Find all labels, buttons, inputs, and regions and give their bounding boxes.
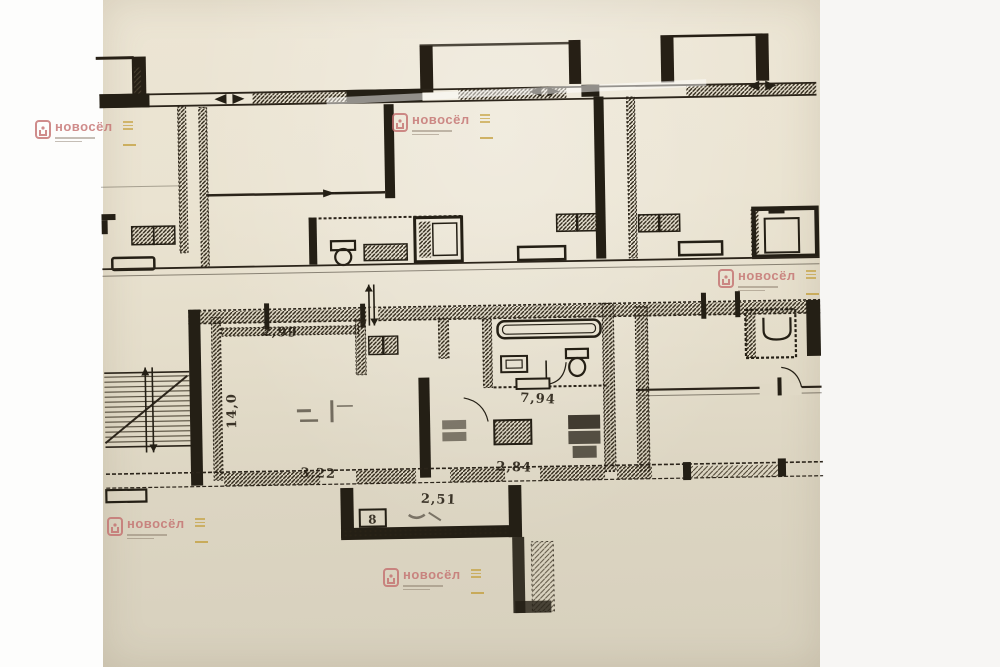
radiator-box bbox=[639, 214, 680, 232]
door-swing bbox=[464, 398, 488, 422]
novosel-logo-icon bbox=[383, 568, 399, 595]
stair-wall bbox=[188, 310, 203, 486]
watermark-accent-mark bbox=[123, 121, 136, 146]
toilet bbox=[331, 241, 355, 265]
dimension-room-bottom-width: 3,22 bbox=[300, 466, 336, 482]
interior-wall bbox=[199, 107, 210, 267]
interior-wall bbox=[178, 107, 189, 253]
interior-wall-with-door bbox=[206, 188, 385, 199]
watermark-accent-mark bbox=[806, 270, 819, 295]
watermark-accent-mark bbox=[195, 518, 208, 543]
dimension-porch-width: 2,51 bbox=[421, 492, 457, 508]
watermark-subtext-lines bbox=[127, 534, 185, 541]
radiator-box bbox=[132, 226, 175, 245]
pencil-marks bbox=[297, 400, 353, 423]
window-sill bbox=[679, 241, 722, 255]
bottom-exterior-wall bbox=[106, 458, 823, 491]
porch-room-number: 8 bbox=[368, 512, 378, 526]
watermark-novosel: новосёл bbox=[383, 568, 484, 595]
novosel-logo-icon bbox=[392, 113, 408, 140]
living-room bbox=[221, 319, 431, 482]
balcony-outline-3 bbox=[660, 35, 769, 83]
window-sill bbox=[518, 246, 565, 260]
floorplan-scan-photo: 2,99 14,0 3,22 7,94 2,84 2,51 8 новосёл … bbox=[0, 0, 1000, 667]
bathroom-block bbox=[438, 315, 608, 390]
interior-wall bbox=[211, 317, 223, 480]
watermark-novosel: новосёл bbox=[392, 113, 493, 140]
toilet bbox=[566, 349, 588, 376]
balcony-outline-2 bbox=[420, 40, 582, 93]
watermark-brand-text: новосёл bbox=[412, 113, 470, 127]
watermark-subtext-lines bbox=[403, 585, 461, 592]
watermark-subtext-lines bbox=[412, 130, 470, 137]
porch-extension bbox=[512, 536, 554, 613]
apartment-divider-wall bbox=[593, 96, 606, 258]
radiator-box bbox=[557, 214, 598, 232]
window-sill bbox=[106, 490, 146, 503]
stove bbox=[494, 420, 531, 445]
watermark-brand-text: новосёл bbox=[738, 269, 796, 283]
upper-floor-strip bbox=[96, 34, 820, 277]
watermark-novosel: новосёл bbox=[718, 269, 819, 296]
shower-cabin bbox=[415, 217, 463, 262]
wall-stub-right-edge bbox=[806, 300, 821, 356]
dimension-kitchen-area: 7,94 bbox=[520, 391, 556, 408]
dimension-kitchen-bottom-width: 2,84 bbox=[496, 459, 532, 475]
vent-shaft-boxes bbox=[369, 336, 398, 355]
apartment-divider-wall bbox=[602, 303, 616, 471]
staircase bbox=[104, 367, 190, 453]
door-leaf bbox=[516, 378, 549, 389]
watermark-brand-text: новосёл bbox=[127, 517, 185, 531]
apartment-divider-wall bbox=[626, 97, 637, 258]
novosel-logo-icon bbox=[107, 517, 123, 544]
watermark-accent-mark bbox=[480, 114, 493, 139]
novosel-logo-icon bbox=[35, 120, 51, 147]
kitchen-sink-unit bbox=[568, 415, 601, 459]
bathroom-block bbox=[309, 215, 463, 266]
dimension-room-top-width: 2,99 bbox=[262, 325, 298, 341]
watermark-brand-text: новосёл bbox=[403, 568, 461, 582]
floorplan-drawing: 2,99 14,0 3,22 7,94 2,84 2,51 8 bbox=[0, 0, 1000, 667]
window-opening bbox=[683, 458, 786, 480]
watermark-subtext-lines bbox=[738, 286, 796, 293]
sink bbox=[501, 356, 527, 372]
bathroom-block-right bbox=[750, 206, 817, 257]
bath-kitchen-wall bbox=[494, 385, 609, 387]
watermark-subtext-lines bbox=[55, 137, 113, 144]
kitchen-table-marks bbox=[442, 420, 466, 441]
watermark-novosel: новосёл bbox=[35, 120, 136, 147]
watermark-brand-text: новосёл bbox=[55, 120, 113, 134]
pencil-marks bbox=[409, 512, 441, 521]
watermark-novosel: новосёл bbox=[107, 517, 208, 544]
bathtub bbox=[497, 320, 600, 339]
sink bbox=[364, 244, 407, 261]
watermark-accent-mark bbox=[471, 569, 484, 594]
built-in-closet bbox=[745, 309, 796, 358]
dimension-living-room-area: 14,0 bbox=[225, 393, 241, 429]
novosel-logo-icon bbox=[718, 269, 734, 296]
top-exterior-wall bbox=[99, 80, 816, 109]
